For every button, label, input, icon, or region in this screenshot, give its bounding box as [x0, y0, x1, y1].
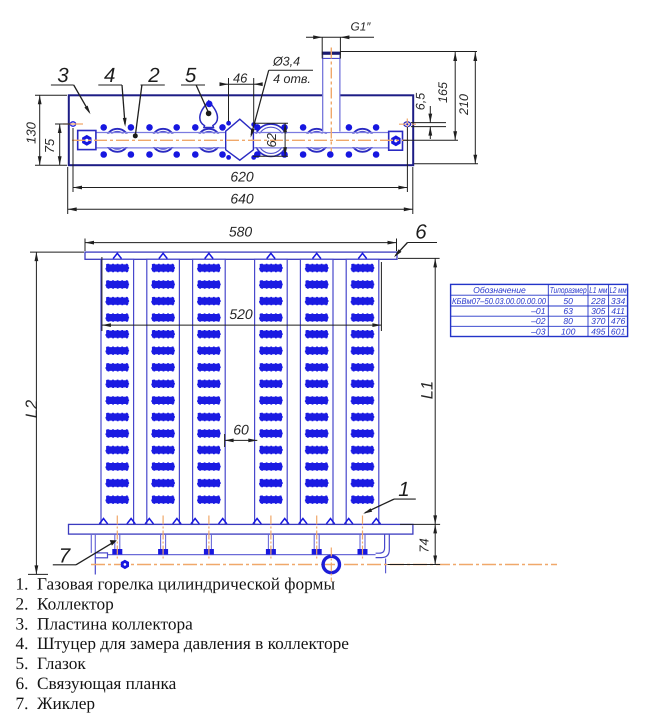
- svg-text:370: 370: [591, 316, 606, 326]
- svg-text:Ø3,4: Ø3,4: [272, 55, 300, 69]
- svg-text:1.: 1.: [16, 575, 29, 594]
- svg-text:7.: 7.: [16, 694, 29, 713]
- svg-text:520: 520: [229, 306, 253, 322]
- svg-text:580: 580: [229, 224, 253, 240]
- svg-text:334: 334: [611, 296, 626, 306]
- svg-text:Обозначение: Обозначение: [473, 285, 526, 295]
- svg-text:Пластина коллектора: Пластина коллектора: [37, 614, 193, 633]
- svg-text:305: 305: [591, 306, 606, 316]
- svg-text:80: 80: [563, 316, 573, 326]
- svg-text:228: 228: [590, 296, 606, 306]
- svg-text:5: 5: [185, 64, 197, 87]
- svg-text:4.: 4.: [16, 634, 29, 653]
- svg-text:Глазок: Глазок: [37, 654, 86, 673]
- svg-text:476: 476: [611, 316, 626, 326]
- svg-text:165: 165: [436, 82, 450, 103]
- svg-text:2: 2: [147, 64, 160, 87]
- svg-text:100: 100: [561, 326, 576, 336]
- svg-text:63: 63: [563, 306, 573, 316]
- svg-text:7: 7: [59, 545, 72, 568]
- svg-text:62: 62: [264, 132, 279, 147]
- svg-text:Штуцер для замера давления в к: Штуцер для замера давления в коллекторе: [37, 634, 349, 653]
- svg-text:Связующая планка: Связующая планка: [37, 674, 177, 693]
- svg-text:1: 1: [398, 478, 409, 501]
- svg-text:411: 411: [611, 306, 625, 316]
- svg-text:L2: L2: [23, 400, 41, 418]
- svg-text:3: 3: [57, 64, 69, 87]
- svg-text:210: 210: [457, 94, 471, 116]
- svg-text:–01: –01: [530, 306, 546, 316]
- svg-text:6.: 6.: [16, 674, 29, 693]
- svg-text:КБВм07–50.03.00.00.00.00: КБВм07–50.03.00.00.00.00: [452, 296, 546, 306]
- svg-text:6,5: 6,5: [414, 93, 428, 110]
- svg-text:–02: –02: [530, 316, 546, 326]
- svg-text:Газовая горелка цилиндрической: Газовая горелка цилиндрической формы: [37, 575, 335, 594]
- svg-text:495: 495: [591, 326, 606, 336]
- svg-text:50: 50: [563, 296, 573, 306]
- svg-text:620: 620: [230, 169, 254, 185]
- svg-text:L1: L1: [419, 381, 437, 399]
- svg-text:Коллектор: Коллектор: [37, 594, 114, 613]
- svg-text:Жиклер: Жиклер: [37, 694, 95, 713]
- svg-text:L2 мм: L2 мм: [610, 285, 627, 295]
- svg-text:60: 60: [233, 422, 249, 438]
- svg-text:Типоразмер: Типоразмер: [550, 285, 587, 295]
- svg-text:2.: 2.: [16, 594, 29, 613]
- svg-text:G1″: G1″: [351, 20, 372, 34]
- svg-text:46: 46: [233, 71, 248, 86]
- svg-text:130: 130: [24, 121, 39, 143]
- svg-text:75: 75: [42, 138, 57, 153]
- svg-text:601: 601: [611, 326, 626, 336]
- svg-text:74: 74: [417, 538, 432, 552]
- svg-text:5.: 5.: [16, 654, 29, 673]
- svg-text:3.: 3.: [16, 614, 29, 633]
- svg-text:4: 4: [104, 64, 115, 87]
- svg-text:640: 640: [230, 191, 254, 207]
- svg-text:–03: –03: [530, 326, 546, 336]
- svg-text:6: 6: [415, 221, 427, 244]
- svg-text:L1 мм: L1 мм: [589, 285, 607, 295]
- svg-text:4 отв.: 4 отв.: [273, 72, 311, 86]
